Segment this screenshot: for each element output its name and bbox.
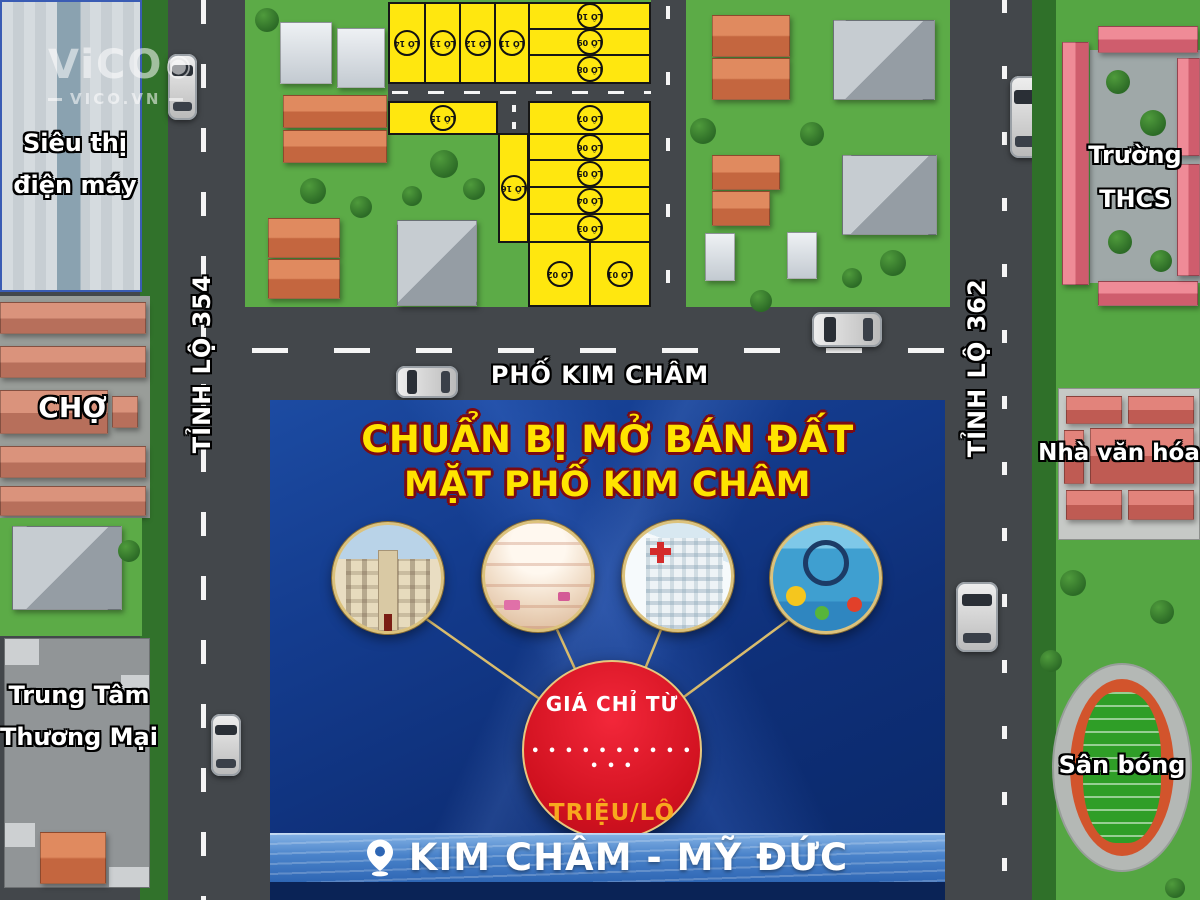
house	[712, 155, 780, 190]
road-center-line	[1002, 0, 1007, 900]
tree	[690, 118, 716, 144]
tree	[255, 8, 279, 32]
mall-floors	[485, 523, 591, 629]
internal-road-dashes	[392, 91, 680, 94]
culture-house-building	[1128, 396, 1194, 424]
lot-badge: LÔ 04	[577, 188, 603, 214]
tree	[880, 250, 906, 276]
main-road-label: PHỐ KIM CHÂM	[480, 362, 720, 390]
tree	[1165, 878, 1185, 898]
tree	[842, 268, 862, 288]
school-label: Trường THCS	[1070, 142, 1200, 213]
tree	[750, 290, 772, 312]
trade-center-label: Trung Tâm Thương Mại	[0, 682, 158, 751]
lot-badge: LÔ 11	[499, 30, 525, 56]
hospital-photo	[622, 520, 734, 632]
town-hall-photo	[332, 522, 444, 634]
title-line-2: MẶT PHỐ KIM CHÂM	[270, 465, 945, 505]
house	[268, 218, 340, 258]
house	[842, 155, 937, 235]
lot-09: LÔ 09	[528, 28, 651, 56]
house	[712, 58, 790, 100]
lot-badge: LÔ 09	[577, 29, 603, 55]
price-unit: TRIỆU/LÔ	[524, 800, 700, 826]
tree	[300, 178, 326, 204]
house	[283, 130, 387, 163]
play-ball	[847, 597, 862, 612]
play-ball	[786, 586, 806, 606]
panel-footer	[270, 882, 945, 900]
tree	[118, 540, 140, 562]
lot-12: LÔ 12	[459, 2, 496, 84]
market-row	[0, 302, 146, 334]
lot-badge: LÔ 13	[430, 30, 456, 56]
mall-kiosk	[504, 600, 520, 610]
lot-badge: LÔ 15	[430, 105, 456, 131]
house	[397, 220, 477, 306]
vico-brand: ViCO◉	[48, 42, 194, 88]
tree	[1150, 250, 1172, 272]
red-cross-icon	[650, 548, 671, 555]
lot-08: LÔ 08	[528, 54, 651, 84]
car	[812, 312, 882, 347]
location-band: KIM CHÂM - MỸ ĐỨC	[270, 833, 945, 882]
house	[705, 233, 735, 281]
town-hall-door	[384, 614, 392, 631]
house	[833, 20, 935, 100]
lot-badge: LÔ 16	[501, 175, 527, 201]
tree	[350, 196, 372, 218]
car	[956, 582, 998, 652]
roof-detail	[5, 639, 39, 665]
tree	[1040, 650, 1062, 672]
lot-badge: LÔ 10	[577, 3, 603, 29]
lot-04: LÔ 04	[528, 186, 651, 215]
road-stub-dashes	[512, 105, 516, 131]
tree	[463, 178, 485, 200]
left-road-label: TỈNH LỘ 354	[189, 274, 217, 454]
location-pin-icon	[367, 839, 393, 877]
tree	[430, 150, 458, 178]
aperture-icon: ◉	[165, 48, 193, 83]
house	[12, 526, 122, 610]
lot-badge: LÔ 08	[577, 56, 603, 82]
car	[211, 714, 241, 776]
lot-02: LÔ 02	[528, 241, 591, 307]
real-estate-map: LÔ 14 LÔ 13 LÔ 12 LÔ 11 LÔ 10 LÔ 09 LÔ 0…	[0, 0, 1200, 900]
house	[337, 28, 385, 88]
stadium-label: Sân bóng	[1058, 752, 1186, 780]
lot-10: LÔ 10	[528, 2, 651, 30]
culture-house-label: Nhà văn hóa	[1038, 440, 1200, 466]
tree	[800, 122, 824, 146]
vico-domain: VICO.VN	[48, 90, 194, 108]
play-structure	[803, 540, 849, 586]
school-building	[1098, 26, 1198, 53]
supermarket-label: Siêu thị điện máy	[0, 130, 150, 199]
lot-badge: LÔ 14	[394, 30, 420, 56]
house	[787, 232, 817, 279]
playground-photo	[770, 522, 882, 634]
market-row	[0, 486, 146, 516]
car	[396, 366, 458, 398]
tree	[1150, 600, 1174, 624]
market-label: CHỢ	[30, 392, 115, 424]
lot-06: LÔ 06	[528, 133, 651, 161]
lot-03: LÔ 03	[528, 213, 651, 243]
lot-05: LÔ 05	[528, 159, 651, 188]
culture-house-building	[1066, 396, 1122, 424]
lot-16: LÔ 16	[498, 133, 529, 243]
house	[40, 832, 106, 884]
tree	[1060, 570, 1086, 596]
tree	[1140, 110, 1166, 136]
lot-01: LÔ 01	[589, 241, 651, 307]
lot-badge: LÔ 07	[577, 105, 603, 131]
lot-badge: LÔ 03	[577, 215, 603, 241]
lot-badge: LÔ 05	[577, 161, 603, 187]
main-road-center-line	[252, 348, 946, 353]
culture-house-building	[1066, 490, 1122, 520]
lot-badge: LÔ 06	[577, 134, 603, 160]
vico-watermark: ViCO◉ VICO.VN	[48, 42, 194, 108]
roof-detail	[109, 867, 149, 887]
lot-07: LÔ 07	[528, 101, 651, 135]
house	[280, 22, 332, 84]
price-dots: • • • • • • • • • • • • •	[524, 744, 700, 774]
panel-title: CHUẨN BỊ MỞ BÁN ĐẤT MẶT PHỐ KIM CHÂM	[270, 418, 945, 505]
lot-13: LÔ 13	[424, 2, 461, 84]
shopping-mall-photo	[482, 520, 594, 632]
lot-badge: LÔ 02	[547, 261, 573, 287]
lot-badge: LÔ 01	[607, 261, 633, 287]
right-road-label: TỈNH LỘ 362	[964, 278, 992, 458]
house	[712, 15, 790, 57]
mall-kiosk	[558, 592, 570, 601]
house	[283, 95, 387, 128]
culture-house-building	[1128, 490, 1194, 520]
house	[268, 259, 340, 299]
market-row	[0, 346, 146, 378]
market-annex	[112, 396, 138, 428]
tree	[1106, 70, 1130, 94]
play-ball	[815, 606, 829, 620]
lot-11: LÔ 11	[494, 2, 530, 84]
market-row	[0, 446, 146, 478]
house	[712, 191, 770, 226]
school-building	[1098, 281, 1198, 306]
price-circle: GIÁ CHỈ TỪ • • • • • • • • • • • • • TRI…	[522, 660, 702, 840]
lot-badge: LÔ 12	[465, 30, 491, 56]
title-line-1: CHUẨN BỊ MỞ BÁN ĐẤT	[270, 418, 945, 461]
tree	[402, 186, 422, 206]
lot-14: LÔ 14	[388, 2, 426, 84]
internal-road-dashes	[666, 6, 670, 302]
location-text: KIM CHÂM - MỸ ĐỨC	[409, 836, 848, 879]
price-prefix: GIÁ CHỈ TỪ	[524, 692, 700, 716]
roof-detail	[5, 823, 35, 847]
tree	[1108, 230, 1132, 254]
ad-panel: CHUẨN BỊ MỞ BÁN ĐẤT MẶT PHỐ KIM CHÂM	[270, 400, 945, 900]
lot-15: LÔ 15	[388, 101, 498, 135]
